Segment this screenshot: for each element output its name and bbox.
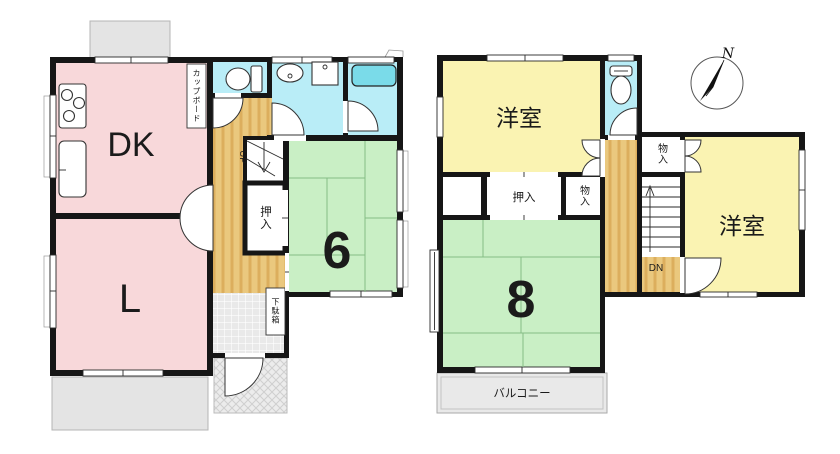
window-dk-left	[50, 95, 56, 178]
wall-closet-div1	[481, 177, 487, 215]
wall-dk-living	[50, 213, 180, 219]
kitchen-sink	[59, 141, 86, 197]
shoe-cabinet-label: 下駄箱	[271, 298, 280, 325]
label-tatami6: 6	[323, 222, 352, 280]
window-toilet2-top	[608, 55, 634, 61]
wall-stairs-left	[637, 137, 642, 257]
balcony-label: バルコニー	[493, 387, 550, 400]
stove-burner	[74, 98, 85, 109]
label-living: L	[119, 277, 141, 321]
wall-dk-hall	[207, 57, 213, 293]
window-dk-left-sill	[44, 96, 50, 177]
floor-2: バルコニー DN	[430, 46, 805, 413]
window-dk-top	[95, 57, 168, 63]
stairs-1f	[245, 138, 285, 183]
cupboard-label: カップボード	[192, 69, 201, 123]
floor-1: UP 押入 カップボード 下駄箱	[44, 21, 408, 430]
door-gap	[274, 135, 306, 141]
label-western1: 洋室	[496, 105, 542, 131]
label-tatami8: 8	[507, 271, 536, 329]
window-living-left	[50, 255, 56, 328]
bathtub	[352, 65, 396, 86]
compass-north-label: N	[721, 46, 735, 62]
window-tatami6-right-a	[397, 150, 403, 212]
closet-2f-left	[443, 177, 481, 215]
window-tatami6-right-sill	[403, 151, 408, 211]
closet-1f-label: 押入	[259, 205, 272, 231]
terrace	[52, 377, 208, 430]
wall-stairs-top	[637, 172, 685, 177]
stove-burner	[62, 90, 73, 101]
closet-2f-label: 押入	[513, 190, 536, 204]
wall-2f-center	[600, 55, 605, 373]
stairs-up-label: UP	[237, 150, 248, 163]
stove-burner	[64, 111, 75, 122]
label-western2: 洋室	[719, 213, 765, 239]
storage-b-label: 物入	[656, 142, 668, 165]
washbasin	[277, 64, 303, 82]
floorplan-page: UP 押入 カップボード 下駄箱	[0, 0, 840, 454]
window-tatami6-right-b	[397, 220, 403, 288]
porch-top	[90, 21, 170, 58]
door-gap	[608, 135, 635, 140]
window-west1-left	[437, 97, 443, 137]
wall-toilet-wash	[267, 57, 272, 98]
window-tatami6-right-sill2	[403, 221, 408, 287]
storage-a-label: 物入	[578, 184, 590, 207]
door-gap	[680, 140, 685, 172]
stairs-dn-label: DN	[649, 263, 663, 274]
wall-closet-div2	[561, 177, 566, 215]
toilet-2f-bowl	[611, 76, 631, 104]
door-gap	[215, 93, 241, 98]
window-west2-bottom	[700, 292, 757, 297]
door-gap	[680, 257, 685, 293]
window-living-left-sill	[44, 256, 50, 327]
compass	[691, 57, 743, 109]
window-bath-top	[348, 57, 394, 63]
toilet-1f-bowl	[226, 68, 250, 90]
door-gap	[600, 139, 605, 177]
label-dk: DK	[107, 126, 155, 164]
toilet-1f-tank	[251, 66, 262, 92]
floorplan-drawing: UP 押入 カップボード 下駄箱	[0, 0, 840, 454]
window-tatami8-balcony	[475, 367, 570, 373]
door-gap	[225, 353, 265, 358]
hallway-2f	[605, 140, 637, 292]
door-gap	[343, 101, 348, 133]
roof-mark	[385, 50, 403, 57]
